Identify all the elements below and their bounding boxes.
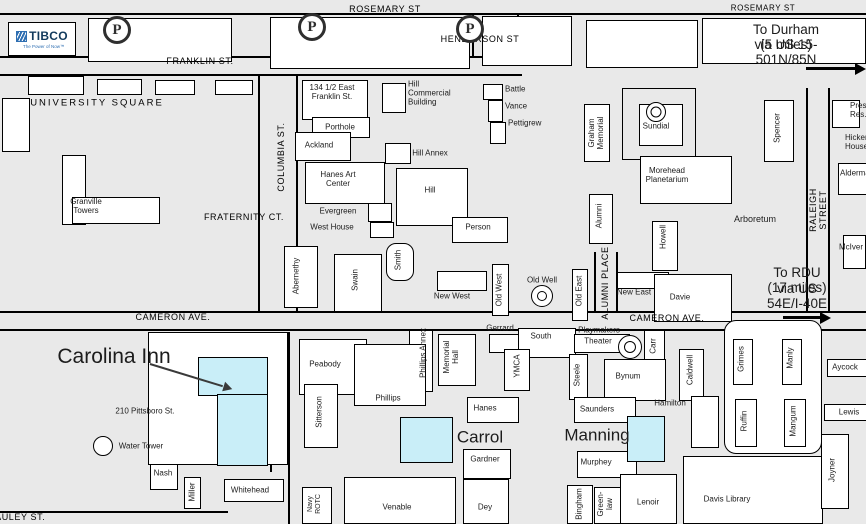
poi-label-carrol: Carrol bbox=[457, 427, 503, 446]
building-label-west-house: West House bbox=[310, 224, 353, 233]
building-label-carr: Carr bbox=[650, 338, 659, 354]
building-shape bbox=[155, 80, 195, 95]
building-label-sundial: Sundial bbox=[643, 123, 670, 132]
battle-shape bbox=[483, 84, 503, 100]
parking-icon: P bbox=[298, 13, 326, 41]
block-rosemary-4 bbox=[586, 20, 698, 68]
bynum-rotunda-icon bbox=[618, 335, 642, 359]
hill-commercial-building-shape bbox=[382, 83, 406, 113]
new-west-shape bbox=[437, 271, 487, 291]
building-label-alderman: Alderman bbox=[840, 170, 866, 179]
to-durham-arrow bbox=[806, 67, 856, 70]
building-label-pres-res: Pres. Res. bbox=[850, 102, 866, 120]
area-label-arboretum: Arboretum bbox=[734, 214, 776, 224]
davis-library-shape bbox=[683, 456, 823, 524]
building-label-davis-library: Davis Library bbox=[704, 496, 751, 505]
to-rdu-arrow bbox=[783, 316, 821, 319]
street-label-alumni-place: ALUMNI PLACE bbox=[600, 246, 610, 319]
building-label-new-east: New East bbox=[617, 289, 651, 298]
street-label-franklin-st: FRANKLIN ST. bbox=[166, 56, 233, 66]
parking-icon: P bbox=[103, 16, 131, 44]
building-label-phillips-annex: Phillips Annex bbox=[420, 328, 429, 378]
direction-to-rdu-line2: via US 54E/I-40E bbox=[763, 281, 832, 311]
street-label-cauley-st: CAULEY ST. bbox=[0, 512, 45, 522]
building-label-joyner: Joyner bbox=[829, 458, 838, 482]
area-label-university-square: UNIVERSITY SQUARE bbox=[30, 99, 164, 110]
building-label-morehead-planetarium: Morehead Planetarium bbox=[646, 167, 689, 185]
building-label-hickerson-house: Hickerson House bbox=[845, 134, 866, 152]
tibco-brand-text: TIBCO bbox=[29, 29, 68, 43]
building-label-hanes: Hanes bbox=[473, 405, 496, 414]
building-label-caldwell: Caldwell bbox=[687, 355, 696, 385]
bynum-rotunda-icon-inner bbox=[624, 341, 636, 353]
building-label-graham-memorial: Graham Memorial bbox=[588, 117, 606, 150]
building-label-old-east: Old East bbox=[576, 276, 585, 307]
building-label-davie: Davie bbox=[670, 294, 690, 303]
west-house-shape bbox=[370, 222, 394, 238]
building-label-steele: Steele bbox=[574, 364, 583, 387]
building-label-granville-towers: Granville Towers bbox=[70, 198, 102, 216]
hill-annex-shape bbox=[385, 143, 411, 164]
building-label-lewis: Lewis bbox=[839, 409, 859, 418]
building-label-mangum: Mangum bbox=[790, 405, 799, 436]
building-label-south: South bbox=[531, 333, 552, 342]
building-label-134-east-franklin: 134 1/2 East Franklin St. bbox=[310, 84, 355, 102]
street-label-rosemary-st-east: ROSEMARY ST bbox=[731, 5, 796, 14]
building-label-pettigrew: Pettigrew bbox=[508, 120, 541, 129]
venable-shape bbox=[344, 477, 456, 524]
street-label-raleigh-street: RALEIGH STREET bbox=[808, 186, 828, 234]
building-label-manly: Manly bbox=[787, 347, 796, 368]
building-shape bbox=[2, 98, 30, 152]
parking-icon: P bbox=[456, 15, 484, 43]
building-label-battle: Battle bbox=[505, 86, 525, 95]
building-label-mciver: McIver bbox=[839, 244, 863, 253]
building-label-playmakers: Playmakers bbox=[578, 327, 620, 336]
building-label-abernethy: Abernethy bbox=[293, 258, 302, 294]
street-label-fraternity-ct: FRATERNITY CT. bbox=[204, 212, 284, 222]
sundial-icon bbox=[646, 102, 666, 122]
evergreen-shape bbox=[368, 203, 392, 222]
street-label-columbia-st: COLUMBIA ST. bbox=[276, 122, 286, 191]
building-label-swain: Swain bbox=[352, 269, 361, 291]
building-label-navy-rotc: Navy ROTC bbox=[307, 494, 323, 514]
building-label-vance: Vance bbox=[505, 103, 527, 112]
building-label-howell: Howell bbox=[660, 225, 669, 249]
building-shape bbox=[28, 76, 84, 95]
tibco-tagline: The Power of Now™ bbox=[23, 44, 65, 49]
building-label-gerrard: Gerrard bbox=[486, 325, 514, 334]
dey-shape bbox=[463, 479, 509, 524]
building-label-hill-commercial: Hill Commercial Building bbox=[408, 81, 451, 108]
building-label-new-west: New West bbox=[434, 293, 470, 302]
building-label-whitehead: Whitehead bbox=[231, 487, 269, 496]
building-label-alumni: Alumni bbox=[596, 204, 605, 228]
building-label-miller: Miller bbox=[189, 482, 198, 501]
building-label-murphey: Murphey bbox=[580, 459, 611, 468]
building-label-lenoir: Lenoir bbox=[637, 499, 659, 508]
building-label-hamilton: Hamilton bbox=[654, 400, 686, 409]
parking-icon-glyph: P bbox=[465, 21, 474, 38]
building-label-greenlaw: Green- law bbox=[597, 492, 615, 517]
building-label-ymca: YMCA bbox=[514, 354, 523, 377]
poi-label-manning: Manning bbox=[564, 425, 629, 444]
pettigrew-shape bbox=[490, 122, 506, 144]
direction-to-durham-line2: via US 15-501N/85N bbox=[746, 37, 826, 67]
building-label-phillips: Phillips bbox=[375, 395, 400, 404]
street-label-cameron-ave-east: CAMERON AVE. bbox=[629, 313, 704, 323]
street-label-rosemary-st-west: ROSEMARY ST bbox=[349, 4, 421, 14]
street-label-cameron-ave-west: CAMERON AVE. bbox=[135, 312, 210, 322]
building-label-old-west: Old West bbox=[496, 274, 505, 307]
building-label-peabody: Peabody bbox=[309, 361, 341, 370]
sundial-icon-inner bbox=[651, 107, 662, 118]
vance-shape bbox=[488, 100, 503, 122]
building-label-evergreen: Evergreen bbox=[320, 208, 357, 217]
building-label-ackland: Ackland bbox=[305, 142, 333, 151]
street-line bbox=[0, 311, 866, 313]
building-label-grimes: Grimes bbox=[738, 346, 747, 372]
building-label-porthole: Porthole bbox=[325, 124, 355, 133]
old-well-icon bbox=[531, 285, 553, 307]
street-line bbox=[288, 332, 290, 524]
parking-icon-glyph: P bbox=[307, 19, 316, 36]
building-shape bbox=[97, 79, 142, 95]
tibco-logo-icon bbox=[16, 31, 27, 42]
old-well-icon-inner bbox=[537, 291, 547, 301]
highlight-carolina-inn-upper bbox=[198, 357, 268, 396]
parking-icon-glyph: P bbox=[112, 22, 121, 39]
campus-map: TIBCO The Power of Now™ PPPROSEMARY STRO… bbox=[0, 0, 866, 524]
building-label-hill: Hill bbox=[424, 187, 435, 196]
building-label-venable: Venable bbox=[383, 504, 412, 513]
building-label-bynum: Bynum bbox=[616, 373, 641, 382]
building-label-hanes-art-center: Hanes Art Center bbox=[320, 171, 355, 189]
tibco-logo: TIBCO The Power of Now™ bbox=[8, 22, 76, 56]
hamilton-shape bbox=[691, 396, 719, 448]
building-label-hill-annex: Hill Annex bbox=[412, 150, 448, 159]
building-label-gardner: Gardner bbox=[470, 456, 499, 465]
building-label-playmakers-theater: Theater bbox=[584, 338, 612, 347]
highlight-manning bbox=[627, 416, 665, 462]
building-label-ruffin: Ruffin bbox=[741, 411, 750, 432]
building-label-bingham: Bingham bbox=[576, 488, 585, 520]
building-label-dey: Dey bbox=[478, 504, 492, 513]
building-label-nash: Nash bbox=[154, 470, 173, 479]
water-tower-icon bbox=[93, 436, 113, 456]
building-label-memorial-hall: Memorial Hall bbox=[443, 341, 461, 374]
building-label-sitterson: Sitterson bbox=[316, 396, 325, 428]
building-label-saunders: Saunders bbox=[580, 406, 614, 415]
highlight-carolina-inn-lower bbox=[217, 394, 268, 466]
building-label-spencer: Spencer bbox=[774, 113, 783, 143]
building-label-smith: Smith bbox=[395, 250, 404, 270]
street-line bbox=[258, 74, 260, 312]
building-label-person: Person bbox=[465, 224, 490, 233]
building-label-210-pittsboro: 210 Pittsboro St. bbox=[115, 408, 174, 417]
building-shape bbox=[215, 80, 253, 95]
street-line bbox=[594, 252, 596, 312]
highlight-carrol bbox=[400, 417, 453, 463]
building-label-aycock: Aycock bbox=[832, 364, 858, 373]
building-label-water-tower: Water Tower bbox=[119, 443, 163, 452]
